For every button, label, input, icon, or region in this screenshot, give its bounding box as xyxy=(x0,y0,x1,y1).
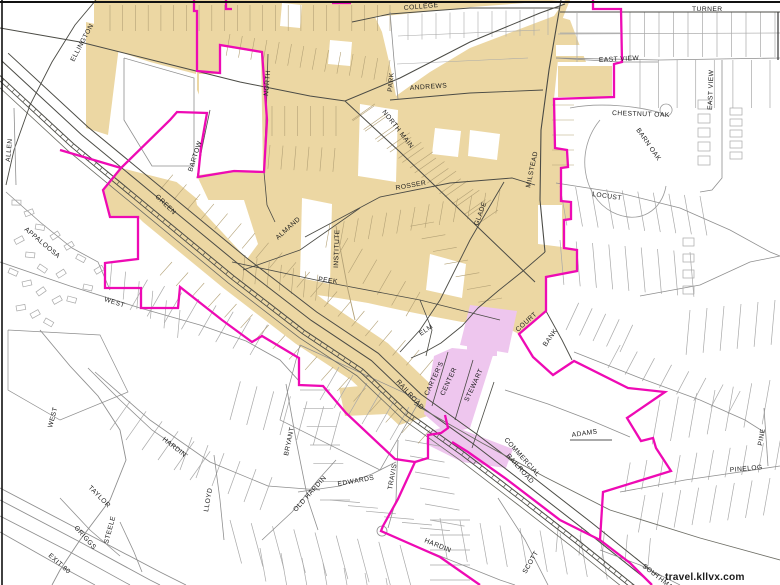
svg-text:EAST VIEW: EAST VIEW xyxy=(707,69,715,110)
svg-text:travel.kllvx.com: travel.kllvx.com xyxy=(665,572,745,583)
svg-text:INSTITUTE: INSTITUTE xyxy=(333,229,341,268)
svg-text:TURNER: TURNER xyxy=(692,6,723,13)
